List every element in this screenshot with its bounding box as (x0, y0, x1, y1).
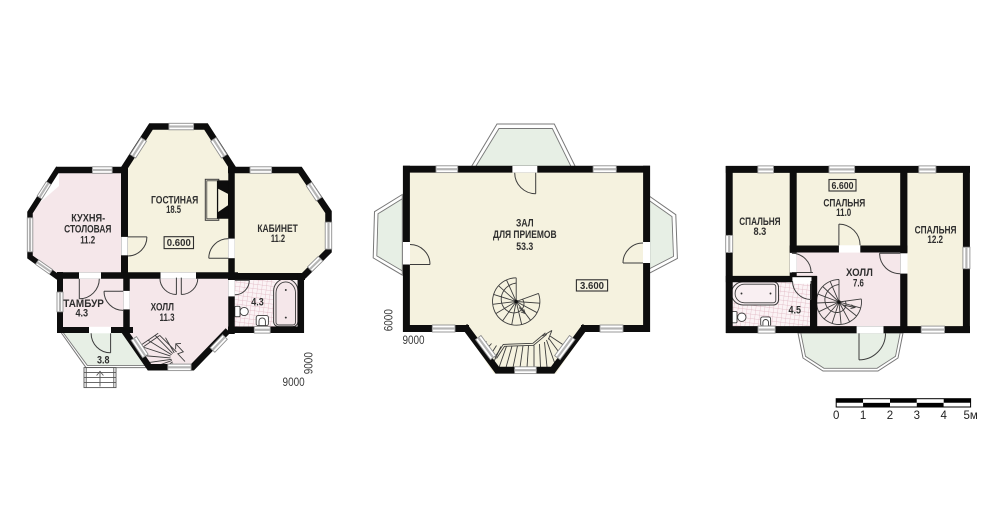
svg-text:9000: 9000 (304, 352, 316, 374)
svg-text:18.5: 18.5 (166, 204, 181, 216)
svg-text:5м: 5м (963, 410, 977, 422)
svg-text:9000: 9000 (402, 335, 424, 347)
svg-text:11.2: 11.2 (80, 235, 95, 247)
svg-text:ЗАЛ: ЗАЛ (516, 218, 534, 230)
svg-text:КУХНЯ-: КУХНЯ- (71, 212, 105, 224)
svg-text:4.3: 4.3 (75, 308, 88, 320)
svg-text:11.3: 11.3 (160, 312, 175, 324)
svg-text:9000: 9000 (283, 377, 305, 389)
svg-text:0.600: 0.600 (167, 237, 191, 249)
svg-text:4.5: 4.5 (789, 305, 802, 317)
svg-text:1: 1 (860, 410, 866, 422)
svg-text:3.8: 3.8 (97, 354, 110, 366)
svg-text:53.3: 53.3 (516, 241, 533, 253)
svg-text:11.2: 11.2 (271, 233, 285, 245)
svg-text:12.2: 12.2 (927, 234, 943, 246)
svg-text:2: 2 (887, 410, 893, 422)
svg-text:4: 4 (940, 410, 947, 422)
svg-text:8.3: 8.3 (754, 226, 767, 238)
svg-text:ДЛЯ ПРИЕМОВ: ДЛЯ ПРИЕМОВ (493, 229, 557, 241)
svg-text:6000: 6000 (384, 309, 396, 331)
svg-text:3: 3 (914, 410, 920, 422)
svg-text:0: 0 (833, 410, 839, 422)
svg-text:6.600: 6.600 (832, 180, 854, 192)
svg-text:7.6: 7.6 (853, 278, 864, 290)
svg-text:3.600: 3.600 (580, 280, 604, 292)
svg-text:11.0: 11.0 (836, 207, 851, 219)
svg-text:4.3: 4.3 (251, 297, 264, 309)
